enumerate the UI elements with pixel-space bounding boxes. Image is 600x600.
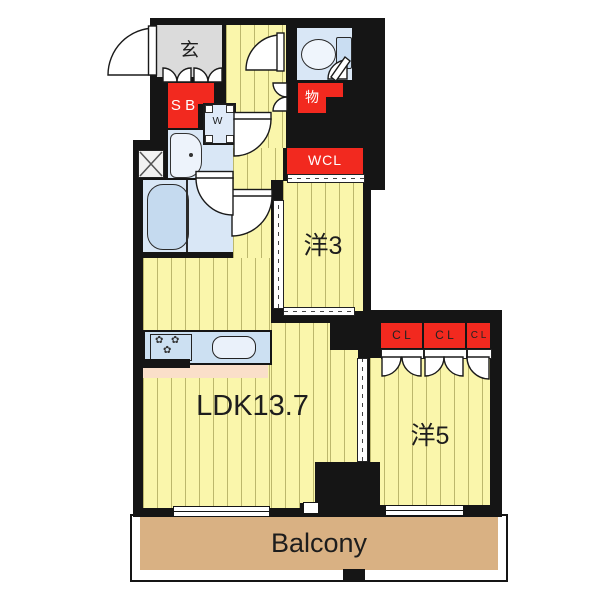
pipe-shaft-icon	[138, 150, 164, 178]
western-room-3-label: 洋3	[283, 220, 363, 274]
shoe-box-label: S B	[168, 85, 198, 127]
closet-door-track	[381, 349, 424, 359]
balcony-label: Balcony	[140, 517, 498, 570]
toilet-tank	[336, 37, 352, 69]
toilet-icon	[301, 39, 336, 70]
wcl-label: WCL	[287, 148, 363, 174]
bathtub-icon	[147, 184, 189, 250]
kitchen-sink-icon	[212, 336, 256, 359]
window	[173, 506, 270, 517]
sliding-door	[283, 307, 355, 316]
hallway-floor	[233, 148, 283, 180]
shoe-box	[198, 83, 214, 104]
floorplan: ✿ ✿ ✿	[0, 0, 600, 600]
ldk-label: LDK13.7	[160, 380, 345, 434]
window	[303, 502, 319, 514]
closet-door-track	[424, 349, 467, 359]
storage-label: 物	[298, 83, 326, 113]
sliding-door	[357, 358, 368, 462]
sliding-door	[287, 174, 365, 183]
stove-icon: ✿ ✿ ✿	[150, 334, 192, 361]
washer-label: W	[203, 103, 232, 141]
bathroom-divider	[186, 180, 188, 252]
wall-segment	[143, 359, 190, 368]
entrance-door-icon	[108, 28, 155, 75]
closet-label: C L	[381, 323, 422, 348]
storage-closet	[326, 83, 343, 97]
closet-label: C L	[467, 323, 490, 348]
wall-segment	[490, 310, 502, 517]
closet-label: C L	[424, 323, 465, 348]
closet-door-track	[467, 349, 492, 359]
wall-segment	[343, 569, 365, 580]
window	[385, 505, 464, 516]
western-room-5-label: 洋5	[380, 410, 480, 464]
washbasin-icon	[170, 133, 202, 178]
pillar	[315, 462, 380, 517]
genkan-label: 玄	[157, 25, 222, 77]
